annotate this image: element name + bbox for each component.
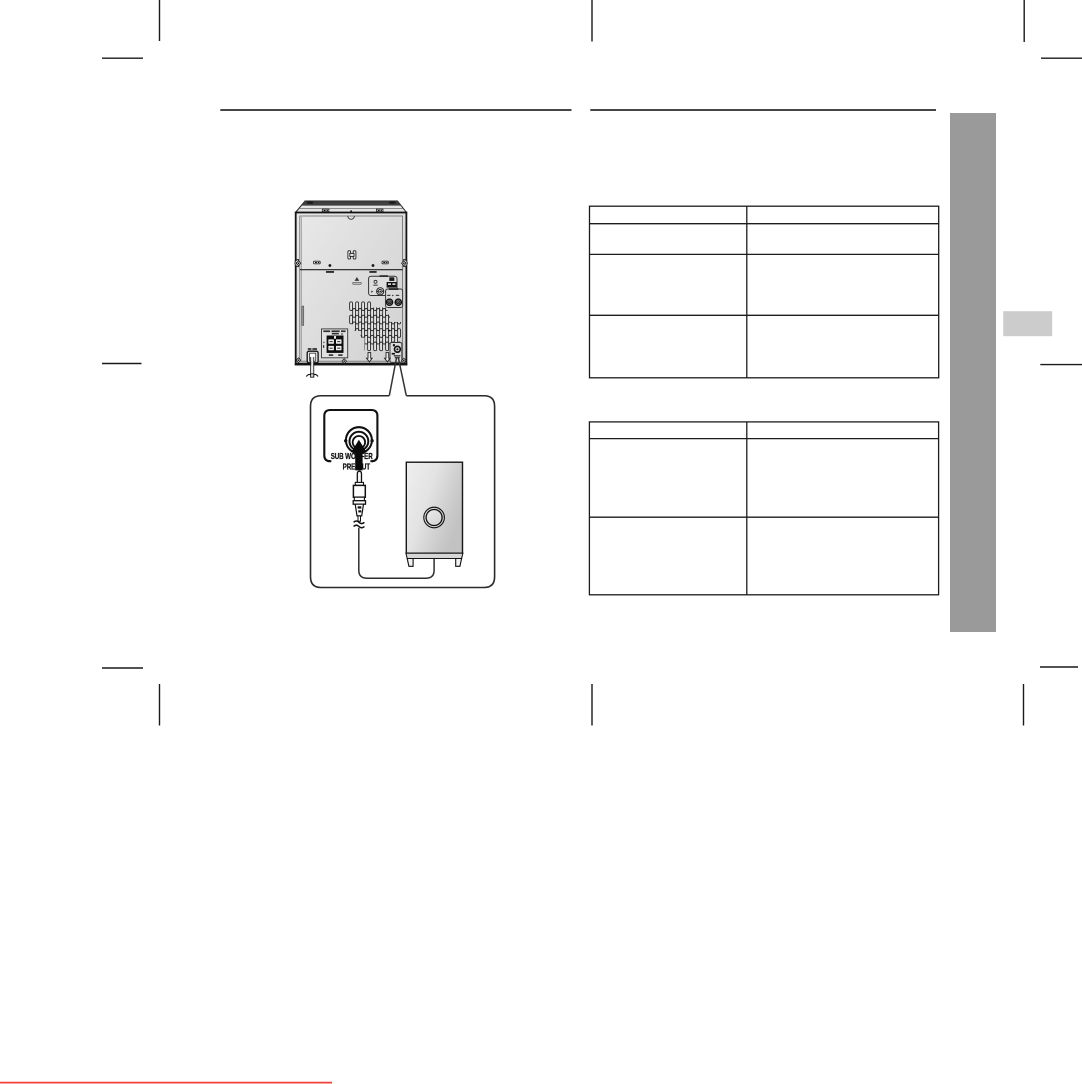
svg-text:SUB WOOFER: SUB WOOFER (331, 451, 374, 461)
